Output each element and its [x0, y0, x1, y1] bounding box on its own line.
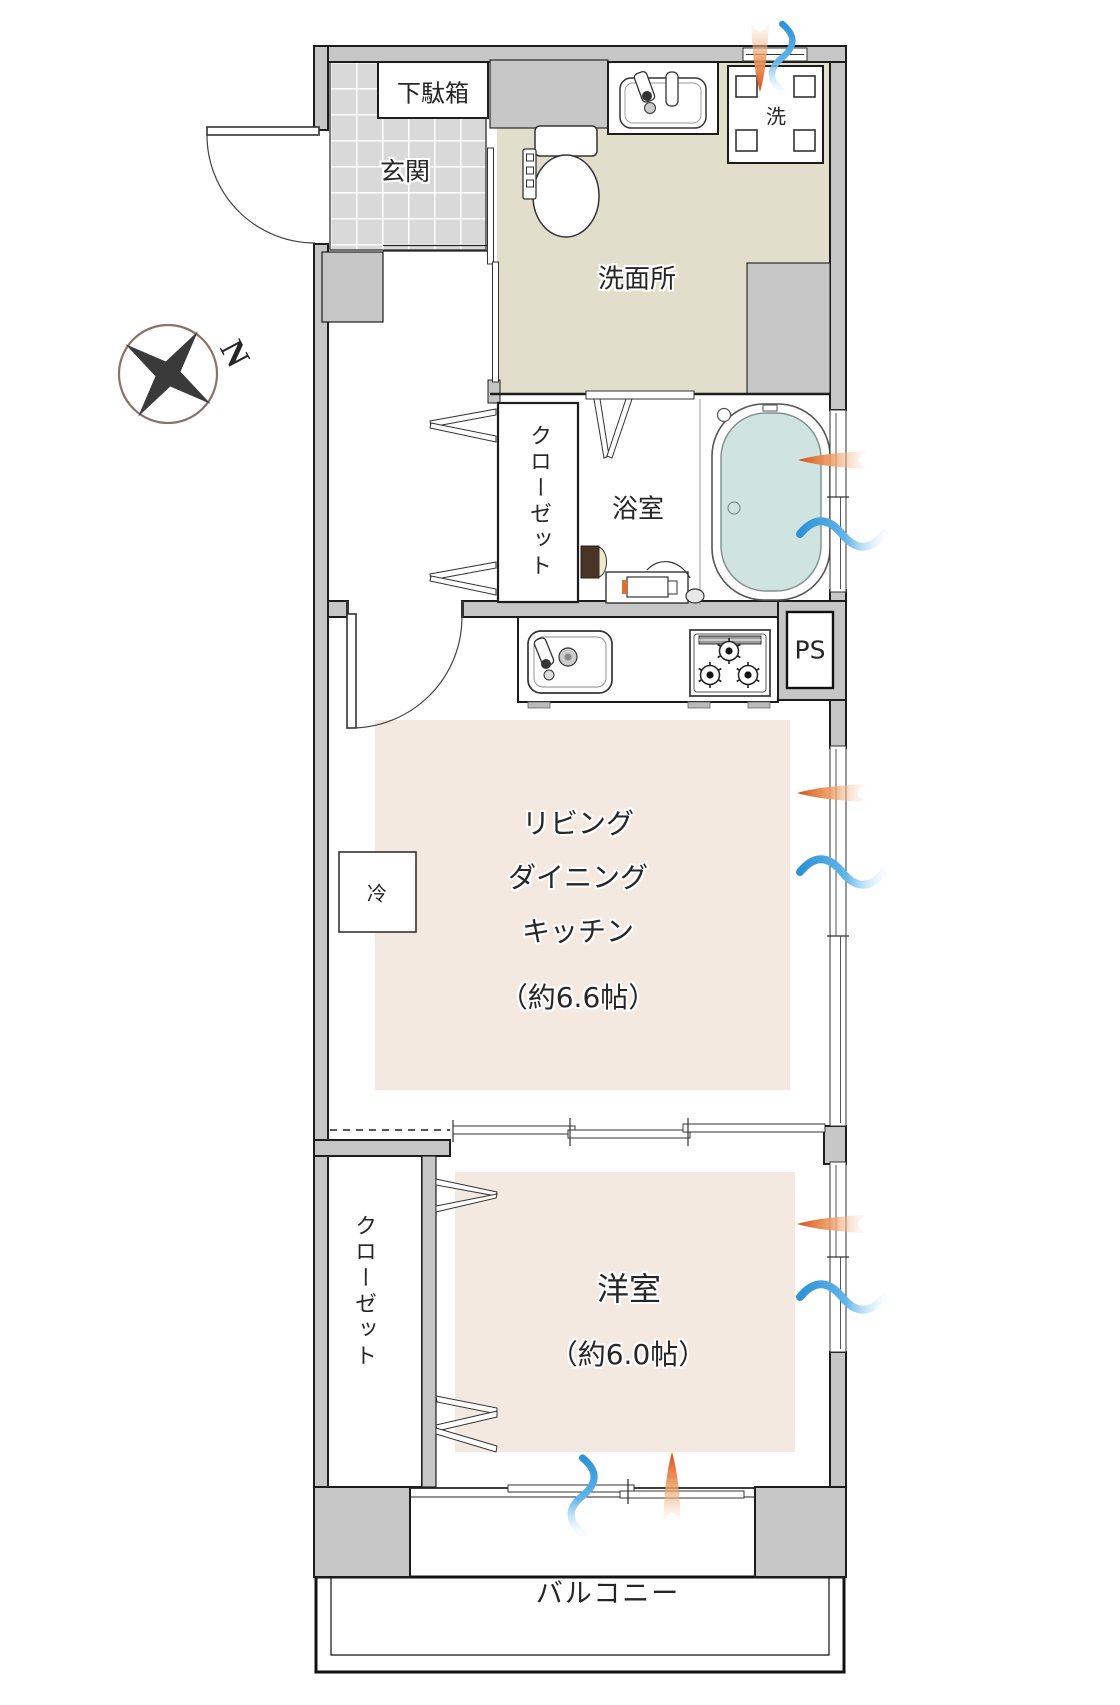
floorplan-page: 玄関 下駄箱 洗面所 洗 クローゼット 浴室 PS リビング ダイニング キッチ… [0, 0, 1120, 1705]
cold-water-icon [571, 1458, 594, 1534]
shoe-cabinet-label: 下駄箱 [397, 74, 469, 109]
ldk-door [346, 601, 464, 728]
floorplan-drawing [0, 0, 1120, 1705]
bedroom-label: 洋室 [597, 1264, 661, 1310]
bath-door-frame [586, 391, 694, 399]
bedroom-floor [455, 1172, 795, 1452]
washing-machine-label: 洗 [766, 101, 786, 130]
refrigerator-label: 冷 [367, 878, 387, 907]
hot-water-icon [797, 1215, 869, 1233]
pipe-space-label: PS [795, 636, 826, 665]
ldk-label-line2: ダイニング [508, 856, 648, 896]
bedroom-closet-wall [422, 1156, 436, 1487]
ldk-label-line1: リビング [522, 802, 634, 842]
hall-closet-label: クローゼット [522, 424, 554, 580]
vanity-sink [608, 62, 718, 134]
shower-counter [581, 546, 704, 603]
bathroom-label: 浴室 [612, 489, 664, 526]
hot-water-icon [797, 784, 869, 802]
compass-icon [96, 302, 241, 447]
ldk-floor [375, 720, 790, 1090]
washroom-sliding-door [488, 148, 499, 382]
entrance-door [207, 127, 329, 244]
balcony-label: バルコニー [536, 1572, 680, 1611]
washroom-label: 洗面所 [598, 259, 676, 296]
bedroom-size-label: （約6.0帖） [550, 1333, 707, 1373]
hall-closet-bifold-door [430, 409, 496, 595]
hot-water-icon [663, 1452, 681, 1524]
kitchen-sink [528, 631, 612, 693]
ldk-label-line3: キッチン [522, 910, 634, 950]
entrance-label: 玄関 [380, 152, 430, 188]
bedroom-closet-label: クローゼット [347, 1214, 379, 1370]
bathroom-folding-door [594, 399, 632, 458]
ldk-size-label: （約6.6帖） [500, 976, 657, 1016]
bathtub [712, 404, 830, 600]
stove [690, 630, 770, 696]
